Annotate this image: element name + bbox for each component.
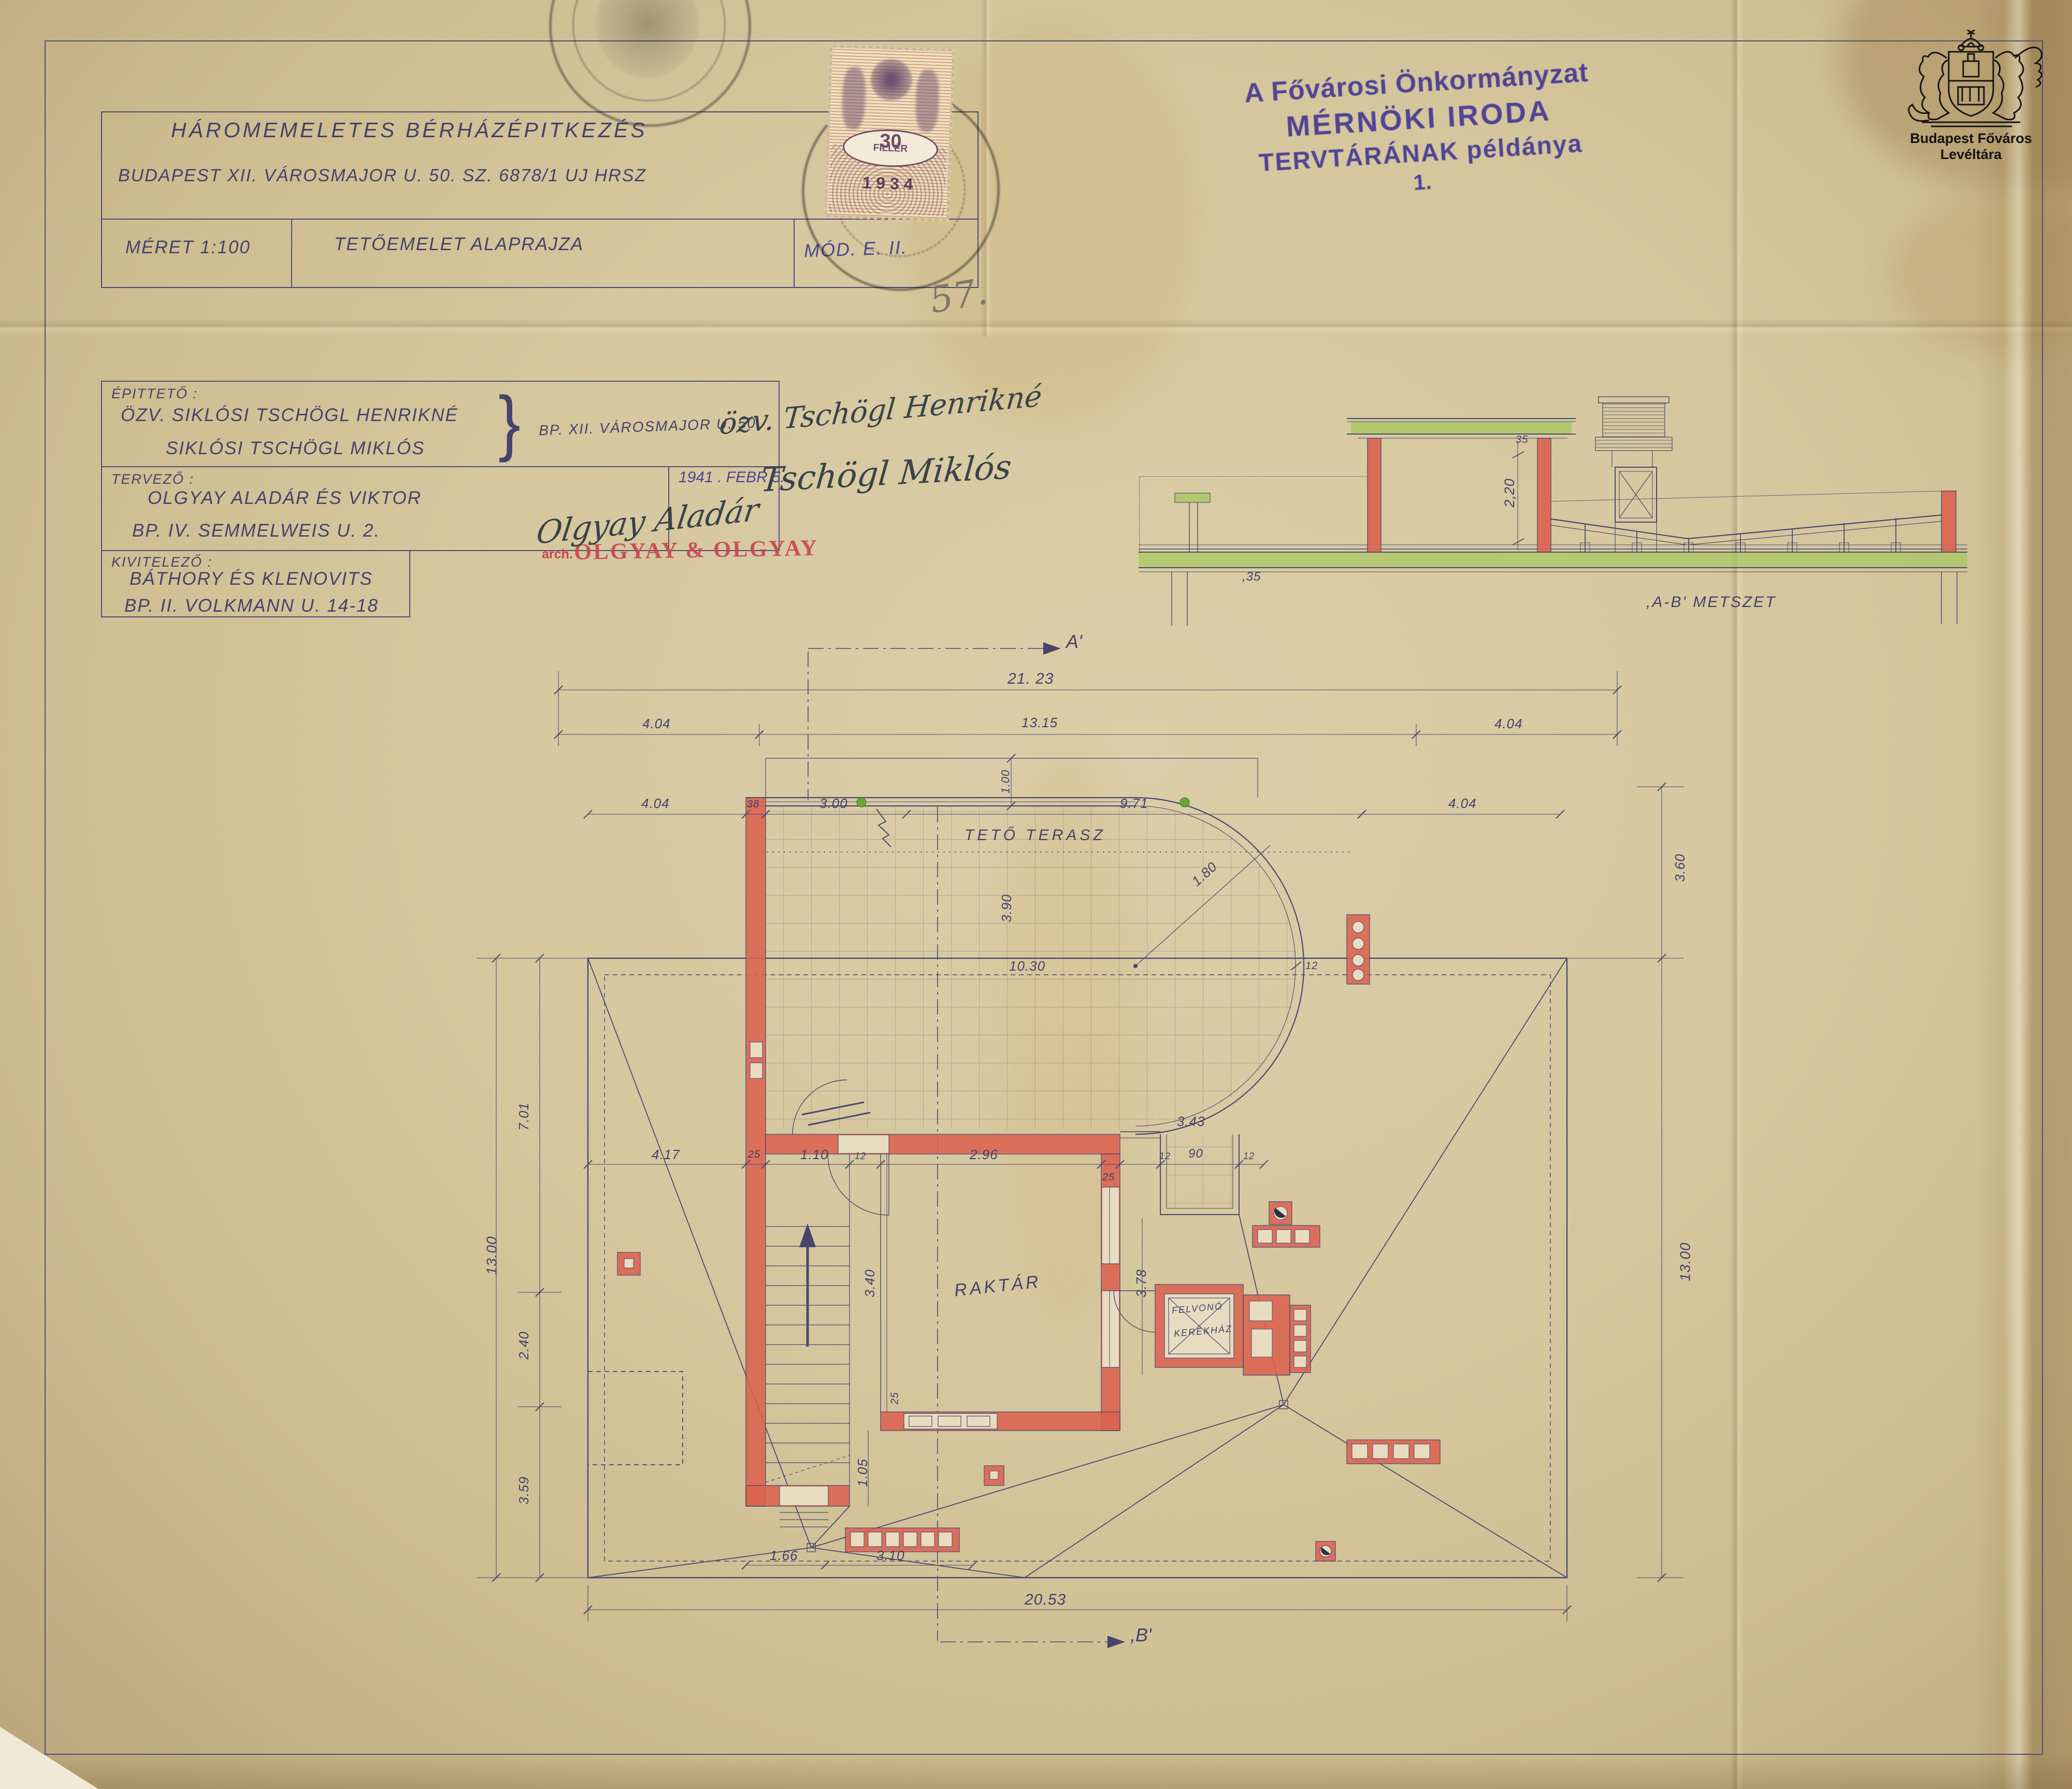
dim: 10.30 bbox=[1009, 958, 1045, 974]
dim: 1.66 bbox=[770, 1548, 798, 1564]
dim: 2.96 bbox=[970, 1147, 998, 1163]
dim: 3.60 bbox=[1672, 854, 1688, 882]
dim: 12 bbox=[1159, 1151, 1171, 1162]
section-chimney-band bbox=[1595, 437, 1672, 451]
section-chimney-shaft bbox=[1603, 403, 1665, 437]
plant-dot bbox=[857, 798, 866, 807]
dim: 3.78 bbox=[1133, 1269, 1149, 1297]
dim: 25 bbox=[889, 1392, 901, 1404]
section-ground-slab bbox=[1139, 552, 1967, 568]
dim: 13.00 bbox=[484, 1236, 500, 1275]
dim: 4.04 bbox=[642, 716, 671, 732]
dim: 13.15 bbox=[1021, 715, 1058, 731]
dim: 3.40 bbox=[862, 1269, 878, 1297]
dim: 4.04 bbox=[1494, 716, 1523, 732]
dim: 3.10 bbox=[876, 1548, 905, 1564]
section-drawing bbox=[1139, 397, 1967, 626]
dim: 12 bbox=[1243, 1151, 1255, 1162]
section-roof-slab bbox=[1351, 422, 1572, 434]
dim: 1.00 bbox=[999, 770, 1012, 794]
dim: 4.04 bbox=[1448, 796, 1477, 812]
dim: 3.00 bbox=[819, 796, 848, 812]
dim: 1.05 bbox=[855, 1459, 871, 1487]
dim-total-bottom: 20.53 bbox=[1025, 1591, 1066, 1609]
dim: 25 bbox=[1102, 1172, 1115, 1184]
scanned-blueprint-sheet: HÁROMEMELETES BÉRHÁZÉPITKEZÉS BUDAPEST X… bbox=[0, 0, 2072, 1789]
roof-left-notch bbox=[588, 1372, 683, 1465]
dim: 13.00 bbox=[1677, 1242, 1694, 1281]
drawing-linework bbox=[0, 0, 2072, 1789]
dim: 12 bbox=[1305, 960, 1318, 972]
section-dim-35-bottom: ,35 bbox=[1242, 570, 1261, 584]
dim: 3.59 bbox=[516, 1476, 532, 1505]
dim: 9.71 bbox=[1120, 796, 1148, 812]
terrace-label: TETŐ TERASZ bbox=[965, 827, 1106, 844]
dim: 4.17 bbox=[652, 1147, 680, 1163]
section-mark-a: A' bbox=[1066, 631, 1082, 653]
dim: 3.43 bbox=[1177, 1114, 1205, 1130]
dim: 12 bbox=[855, 1151, 866, 1162]
dim-total-top: 21. 23 bbox=[1008, 670, 1054, 688]
floor-plan bbox=[477, 642, 1683, 1648]
dim: 7.01 bbox=[516, 1102, 532, 1131]
section-red-column-right bbox=[1537, 438, 1551, 552]
dim: 25 bbox=[748, 1149, 760, 1161]
section-dim-35-top: 35 bbox=[1516, 434, 1528, 446]
section-dim-220: 2,20 bbox=[1502, 478, 1518, 508]
section-left-canopy bbox=[1175, 493, 1210, 502]
dim: 2.40 bbox=[516, 1331, 532, 1360]
dim: 38 bbox=[747, 799, 759, 811]
dim: 1.10 bbox=[800, 1147, 829, 1163]
section-red-end-post bbox=[1941, 491, 1956, 552]
plant-dot bbox=[1180, 798, 1189, 807]
section-chimney-cap bbox=[1599, 397, 1669, 403]
dim: 90 bbox=[1188, 1147, 1203, 1161]
section-red-column-left bbox=[1368, 438, 1381, 552]
section-title: ,A-B' METSZET bbox=[1646, 594, 1776, 611]
dim: 3.90 bbox=[999, 894, 1015, 922]
section-mark-b: ,B' bbox=[1130, 1624, 1152, 1646]
dim: 4.04 bbox=[641, 796, 670, 812]
